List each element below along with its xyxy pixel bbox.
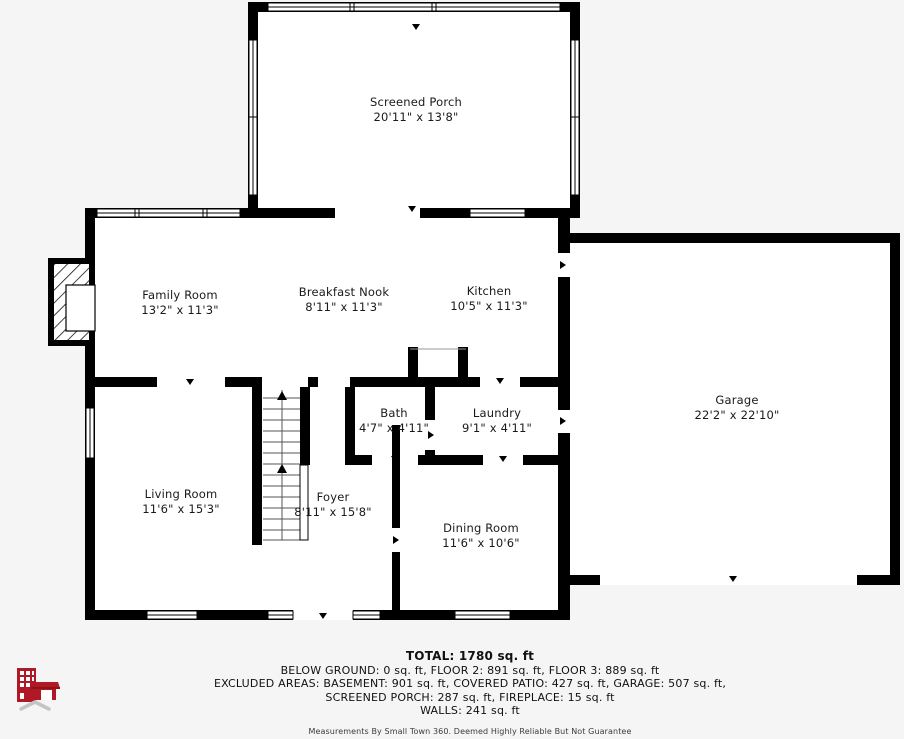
floors-line: BELOW GROUND: 0 sq. ft, FLOOR 2: 891 sq.… [36,664,904,678]
fireplace [48,258,95,346]
disclaimer-text: Measurements By Small Town 360. Deemed H… [36,725,904,739]
excluded-areas-line: EXCLUDED AREAS: BASEMENT: 901 sq. ft, CO… [36,677,904,691]
walls-line: WALLS: 241 sq. ft [36,704,904,718]
total-area: TOTAL: 1780 sq. ft [36,650,904,664]
room-label-kitchen: Kitchen10'5" x 11'3" [450,284,528,314]
room-label-screened-porch: Screened Porch20'11" x 13'8" [370,95,462,125]
small-town-360-logo [8,660,64,716]
room-label-laundry: Laundry9'1" x 4'11" [462,406,532,436]
room-label-bath: Bath4'7" x 4'11" [359,406,429,436]
room-label-breakfast-nook: Breakfast Nook8'11" x 11'3" [299,285,390,315]
excluded-areas-line2: SCREENED PORCH: 287 sq. ft, FIREPLACE: 1… [36,691,904,705]
room-label-garage: Garage22'2" x 22'10" [694,393,779,423]
area-summary: TOTAL: 1780 sq. ft BELOW GROUND: 0 sq. f… [36,650,904,739]
floor-plan-page: Screened Porch20'11" x 13'8" Family Room… [0,0,904,734]
room-label-living-room: Living Room11'6" x 15'3" [142,487,220,517]
building-icon [8,660,64,716]
room-label-family-room: Family Room13'2" x 11'3" [141,288,219,318]
room-label-foyer: Foyer8'11" x 15'8" [294,490,372,520]
room-label-dining-room: Dining Room11'6" x 10'6" [442,521,520,551]
